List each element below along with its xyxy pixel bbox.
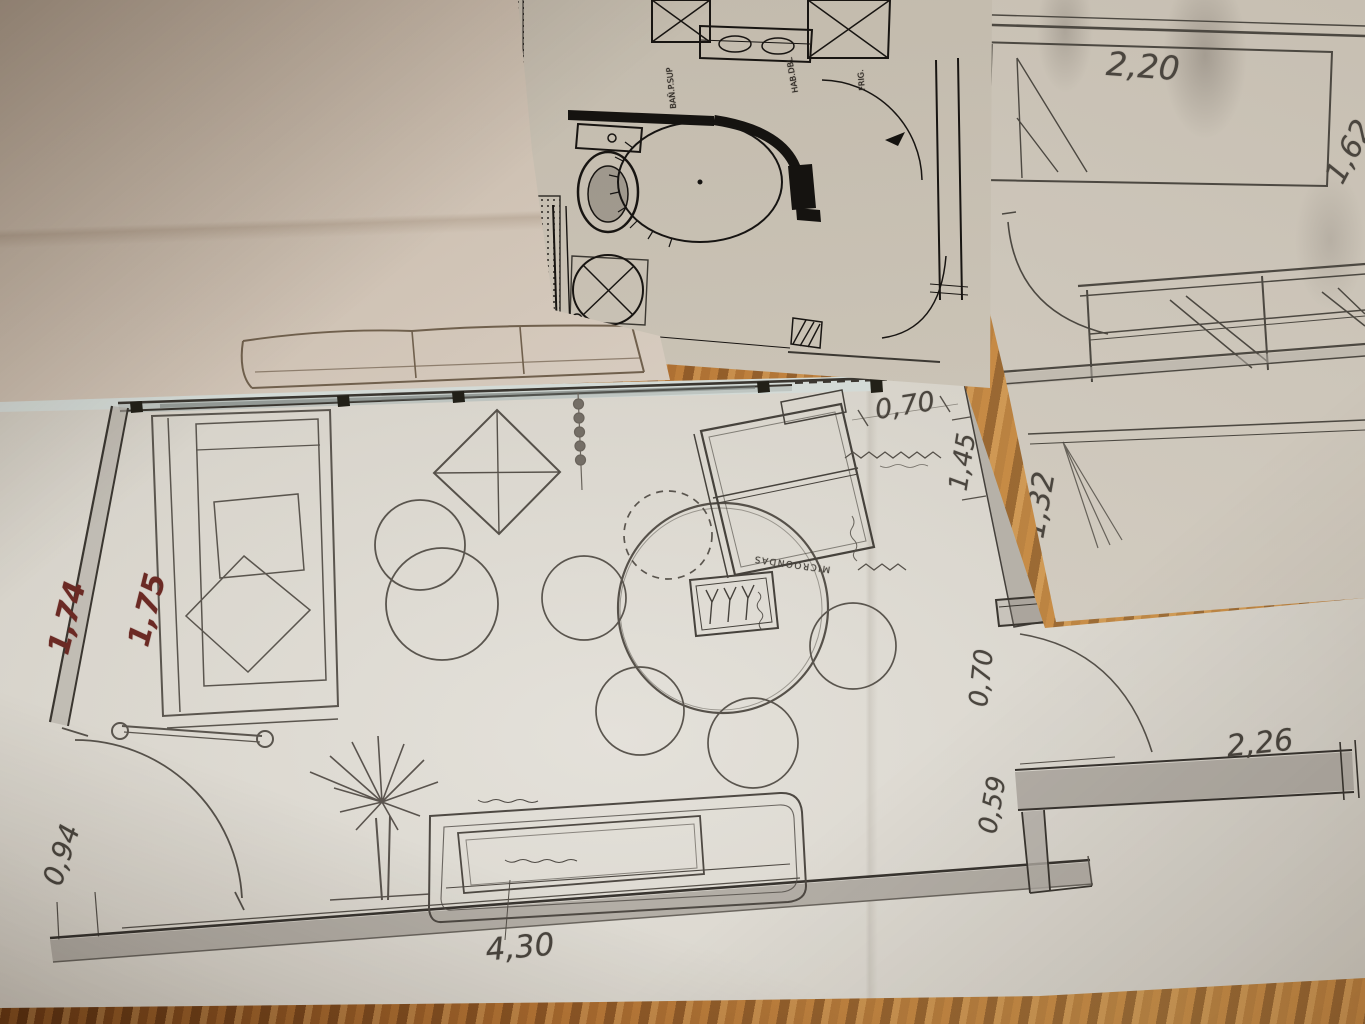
left-wall [50,406,128,726]
side-tables [375,500,498,660]
vanity-double-sink [700,26,812,62]
hall-wardrobe [1000,264,1365,386]
sofa-sketch [242,326,644,388]
bedroom-door-swing [1002,212,1108,334]
dim-right-door: 0,70 [966,648,998,708]
kitchen-counter [694,390,874,578]
bottom-wall [50,856,1093,962]
sofa-cushion-diamond [186,556,310,672]
sofa [152,410,338,728]
tv [458,816,704,893]
pillow-fold [1017,58,1087,178]
direction-arrow [885,132,905,146]
oval-tub [609,122,782,247]
chairs [542,491,896,788]
dim-bed-width: 2,20 [1105,47,1181,85]
bath-entry-door [822,80,922,180]
sink-unit [690,572,778,636]
dim-right-bottom: 2,26 [1225,726,1295,763]
shower-tray [570,255,648,325]
photo-of-floor-plans: 0,70 1,45 1,74 1,75 0,94 4,30 0,70 0,59 … [0,0,1365,1024]
lower-hall-wall [1028,420,1365,548]
sofa-cushion-square [214,494,304,578]
bed [960,14,1365,186]
plant [310,736,438,900]
beaded-divider [574,392,586,490]
dining-table [618,503,828,713]
dim-bottom-width: 4,30 [484,930,555,967]
left-door-swing [57,728,244,962]
